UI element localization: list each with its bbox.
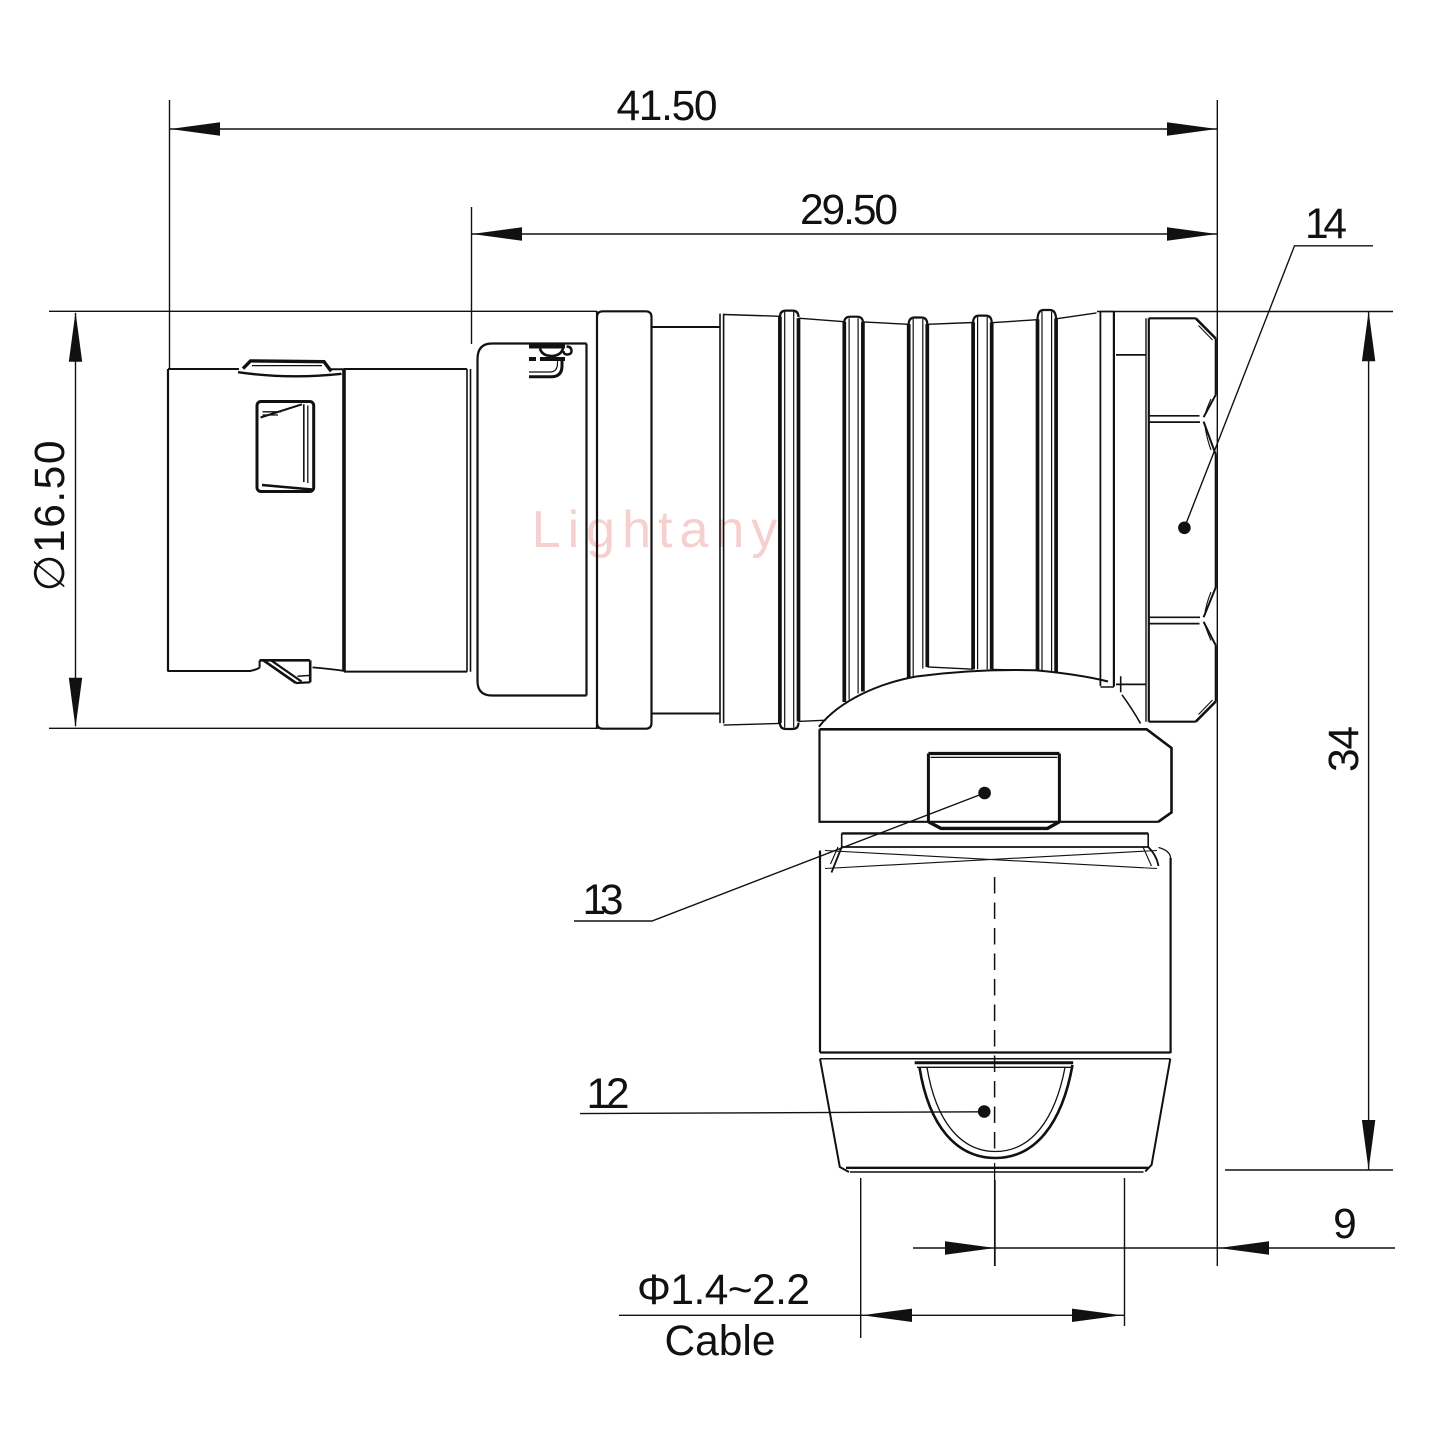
svg-text:Cable: Cable [664,1318,775,1365]
svg-text:34: 34 [1321,726,1368,772]
svg-text:∅16.50: ∅16.50 [27,441,74,592]
svg-text:12: 12 [587,1071,630,1118]
svg-text:14: 14 [1305,201,1347,248]
svg-text:Lightany: Lightany [532,501,785,559]
svg-text:29.50: 29.50 [800,187,898,234]
svg-text:Φ1.4~2.2: Φ1.4~2.2 [637,1267,810,1314]
svg-text:41.50: 41.50 [617,83,718,130]
svg-text:9: 9 [1333,1201,1357,1248]
svg-text:13: 13 [583,877,624,924]
